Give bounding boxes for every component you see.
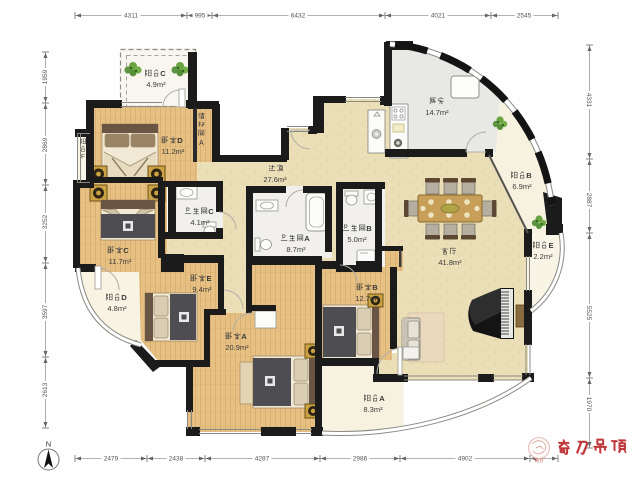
svg-text:2613: 2613: [42, 382, 49, 397]
svg-text:4902: 4902: [458, 456, 473, 463]
svg-text:A: A: [241, 332, 247, 341]
svg-text:8.3m²: 8.3m²: [363, 405, 383, 414]
svg-text:6.9m²: 6.9m²: [512, 182, 532, 191]
svg-text:C: C: [208, 207, 214, 216]
svg-text:2869: 2869: [42, 137, 49, 152]
svg-text:B: B: [526, 171, 532, 180]
svg-text:41.8m²: 41.8m²: [438, 258, 462, 267]
svg-text:4.8m²: 4.8m²: [107, 304, 127, 313]
svg-text:A: A: [199, 140, 204, 147]
svg-text:20.9m²: 20.9m²: [225, 343, 249, 352]
svg-text:4287: 4287: [255, 456, 270, 463]
svg-text:1959: 1959: [42, 69, 49, 84]
svg-text:2887: 2887: [585, 193, 592, 208]
svg-text:4.9m²: 4.9m²: [146, 80, 166, 89]
svg-text:3252: 3252: [42, 214, 49, 229]
svg-text:14.7m²: 14.7m²: [425, 108, 449, 117]
svg-text:2479: 2479: [104, 456, 119, 463]
svg-text:2438: 2438: [169, 456, 184, 463]
svg-text:C: C: [160, 69, 166, 78]
svg-text:D: D: [121, 293, 127, 302]
svg-text:4.1m²: 4.1m²: [190, 218, 210, 227]
svg-text:A: A: [304, 234, 310, 243]
svg-text:995: 995: [195, 13, 206, 20]
svg-text:D: D: [177, 136, 183, 145]
svg-text:N: N: [46, 440, 51, 449]
svg-text:F: F: [81, 154, 85, 161]
svg-text:B: B: [366, 224, 372, 233]
svg-text:4311: 4311: [124, 13, 138, 20]
svg-text:6432: 6432: [291, 13, 306, 20]
svg-text:8.7m²: 8.7m²: [286, 245, 306, 254]
svg-text:A: A: [379, 394, 385, 403]
svg-text:5.0m²: 5.0m²: [347, 235, 367, 244]
svg-text:4021: 4021: [431, 13, 446, 20]
svg-text:E: E: [206, 274, 211, 283]
svg-text:11.2m²: 11.2m²: [162, 147, 185, 156]
svg-text:B: B: [372, 283, 378, 292]
svg-text:27.6m²: 27.6m²: [263, 175, 287, 184]
svg-text:9.4m²: 9.4m²: [192, 285, 212, 294]
svg-text:2545: 2545: [517, 13, 532, 20]
svg-text:4331: 4331: [585, 93, 592, 108]
svg-text:5525: 5525: [585, 306, 592, 321]
svg-text:1970: 1970: [585, 397, 592, 412]
svg-text:E: E: [548, 241, 553, 250]
svg-text:3597: 3597: [42, 304, 49, 319]
svg-text:11.7m²: 11.7m²: [109, 257, 132, 266]
svg-text:12.7m²: 12.7m²: [355, 294, 379, 303]
svg-text:2986: 2986: [353, 456, 368, 463]
svg-text:C: C: [123, 246, 129, 255]
svg-text:奇力: 奇力: [535, 457, 544, 464]
svg-text:2.2m²: 2.2m²: [533, 252, 553, 261]
